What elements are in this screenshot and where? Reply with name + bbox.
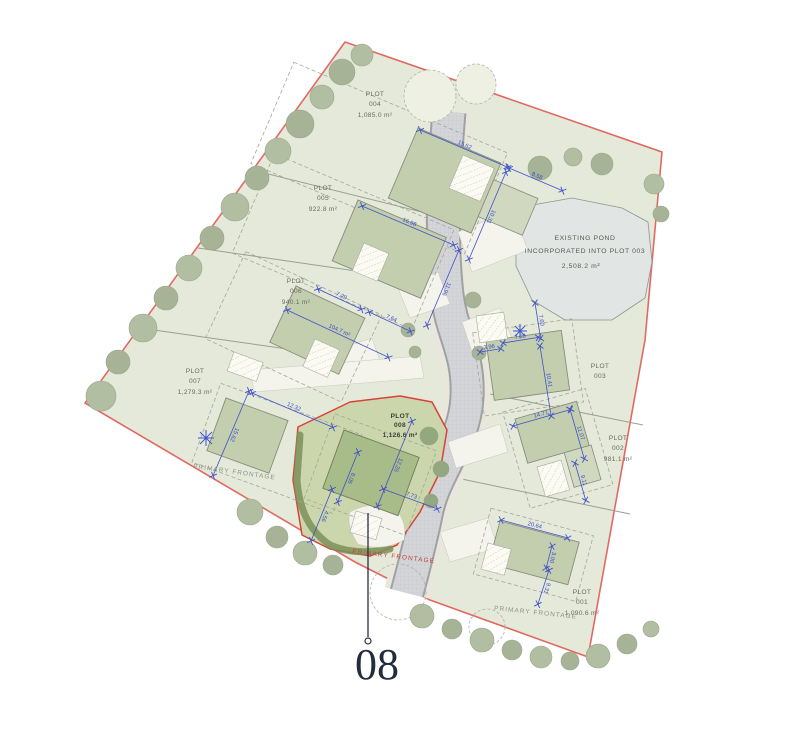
plot-title: PLOT xyxy=(287,278,305,285)
plot-number: 001 xyxy=(576,599,588,606)
plot-number: 003 xyxy=(594,373,606,380)
plot-title: PLOT xyxy=(391,413,410,420)
pond xyxy=(516,198,652,320)
plot-title: PLOT xyxy=(314,185,332,192)
plot-title: PLOT xyxy=(609,435,627,442)
plot-area: 981.1 m² xyxy=(604,456,633,463)
plot-area: 922.8 m² xyxy=(309,206,338,213)
site-plan-page: 15.62 8.58 10.31 16.98 11.96 7.29 7.64 1… xyxy=(0,0,800,755)
plot-title: PLOT xyxy=(186,368,204,375)
plot-number: 006 xyxy=(290,288,302,295)
plot-number: 004 xyxy=(369,101,381,108)
plot-title: PLOT xyxy=(366,91,384,98)
plot-number: 008 xyxy=(394,422,406,429)
callout-number: 08 xyxy=(355,640,399,689)
pond-area: 2,508.2 m² xyxy=(562,263,601,270)
plot-title: PLOT xyxy=(573,589,591,596)
pond-title: EXISTING POND xyxy=(554,235,615,242)
plot-area: 940.1 m² xyxy=(282,299,311,306)
plot-area: 1,085.0 m² xyxy=(358,112,393,119)
plot-title: PLOT xyxy=(591,363,609,370)
pond-subtitle: INCORPORATED INTO PLOT 003 xyxy=(525,248,646,255)
plot-number: 002 xyxy=(612,445,624,452)
plot-area: 1,126.6 m² xyxy=(383,432,418,439)
plot-area: 1,279.3 m² xyxy=(178,389,213,396)
plot-number: 005 xyxy=(317,195,329,202)
site-plan: 15.62 8.58 10.31 16.98 11.96 7.29 7.64 1… xyxy=(0,0,800,755)
plot-number: 007 xyxy=(189,378,201,385)
